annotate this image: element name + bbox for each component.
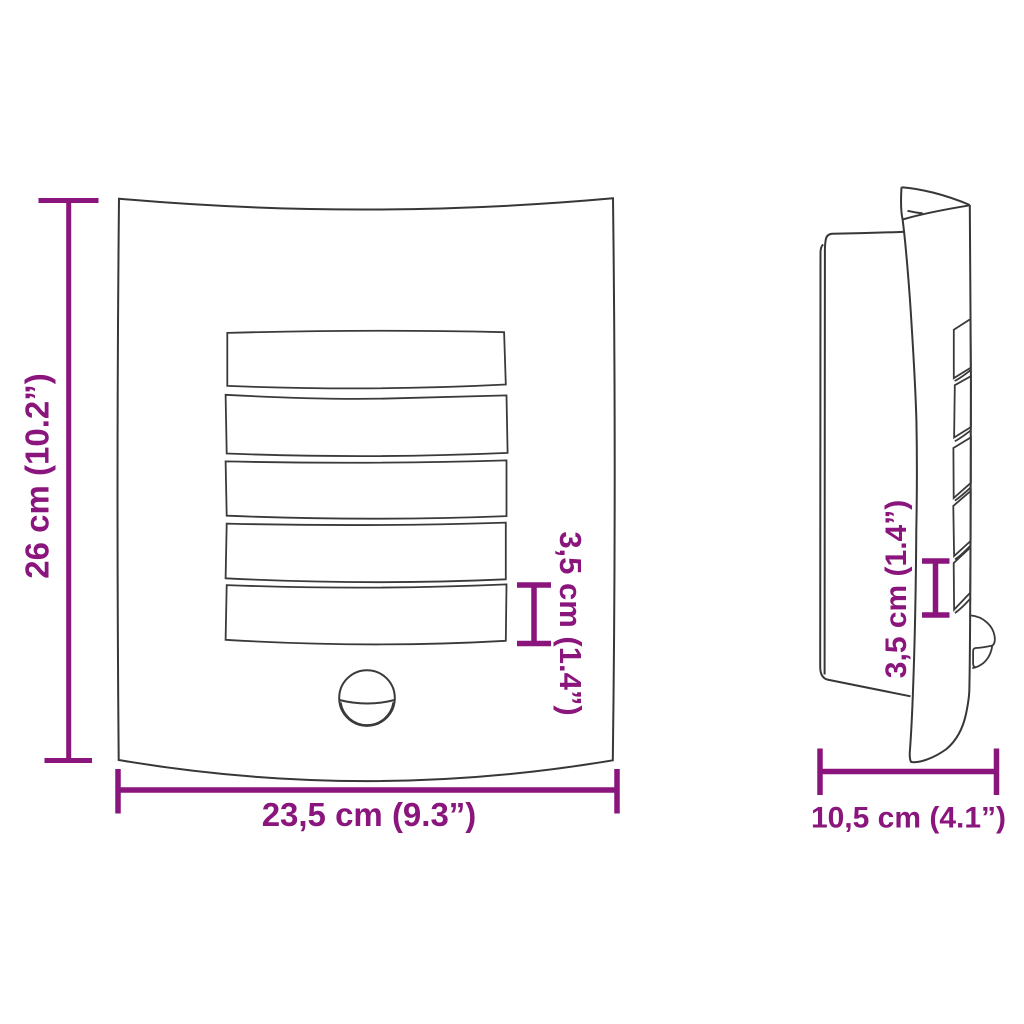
- svg-text:3,5 cm (1.4”): 3,5 cm (1.4”): [553, 531, 588, 715]
- svg-text:10,5 cm (4.1”): 10,5 cm (4.1”): [811, 802, 1006, 835]
- svg-text:3,5 cm (1.4”): 3,5 cm (1.4”): [880, 500, 913, 678]
- svg-text:26 cm (10.2”): 26 cm (10.2”): [19, 373, 56, 578]
- svg-text:23,5 cm (9.3”): 23,5 cm (9.3”): [262, 796, 477, 833]
